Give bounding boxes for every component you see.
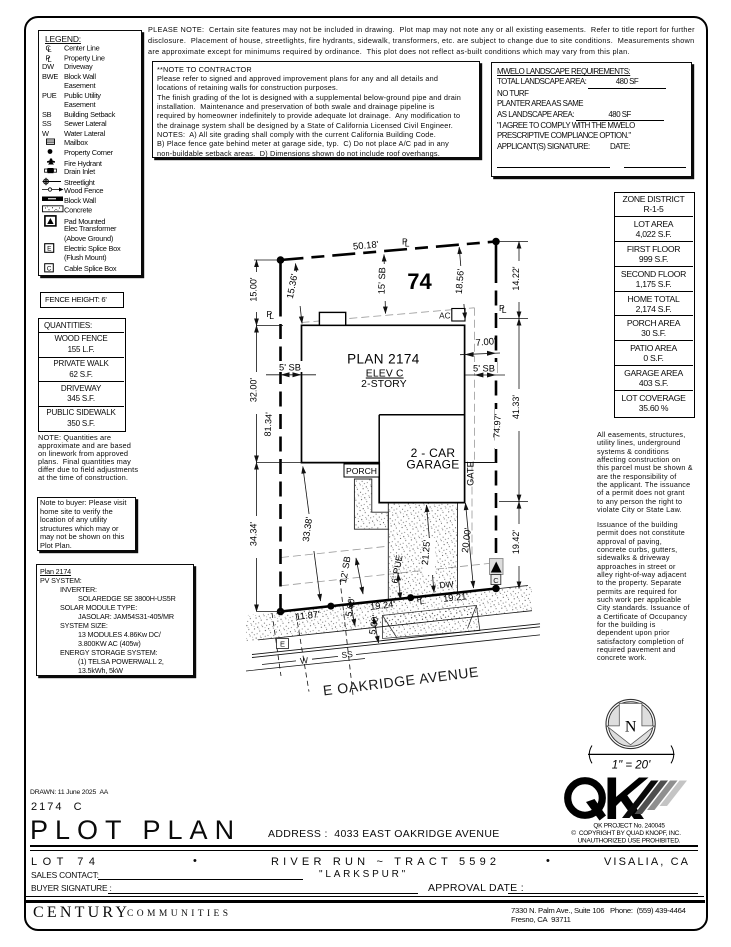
- svg-text:PLAN 2174: PLAN 2174: [347, 352, 420, 367]
- svg-text:E: E: [280, 640, 285, 649]
- svg-text:AC: AC: [439, 312, 450, 321]
- svg-text:PORCH: PORCH: [346, 466, 377, 476]
- svg-text:C: C: [493, 576, 499, 585]
- svg-text:81.34': 81.34': [263, 412, 274, 437]
- svg-text:19.42': 19.42': [511, 530, 521, 555]
- svg-text:L: L: [269, 311, 274, 321]
- svg-text:74.97': 74.97': [492, 413, 503, 438]
- svg-text:SS: SS: [341, 649, 354, 660]
- svg-text:32.00': 32.00': [249, 378, 259, 403]
- svg-text:41.33': 41.33': [511, 395, 521, 420]
- svg-text:L: L: [502, 305, 507, 315]
- svg-text:L: L: [405, 239, 410, 249]
- svg-text:74: 74: [407, 269, 432, 294]
- svg-text:12' SB: 12' SB: [338, 556, 353, 584]
- svg-text:14.22': 14.22': [511, 266, 521, 291]
- svg-text:2-STORY: 2-STORY: [361, 379, 407, 390]
- svg-text:7.00': 7.00': [475, 336, 496, 349]
- svg-text:DW: DW: [439, 579, 454, 590]
- svg-text:15.00': 15.00': [249, 277, 259, 302]
- svg-text:50.18': 50.18': [353, 239, 380, 252]
- svg-text:5.00': 5.00': [367, 614, 380, 636]
- svg-text:5' SB: 5' SB: [473, 364, 495, 374]
- svg-text:UNAUTHORIZED USE PROHIBITED.: UNAUTHORIZED USE PROHIBITED.: [578, 838, 681, 845]
- svg-text:GATE: GATE: [466, 461, 476, 486]
- svg-text:QK PROJECT No. 240045: QK PROJECT No. 240045: [593, 823, 665, 830]
- svg-text:34.34': 34.34': [249, 522, 259, 547]
- svg-text:15' SB: 15' SB: [376, 267, 387, 294]
- svg-text:N: N: [625, 719, 637, 736]
- svg-text:20.00': 20.00': [460, 527, 473, 553]
- svg-text:5' SB: 5' SB: [279, 363, 301, 373]
- svg-text:© COPYRIGHT BY QUAD KNOPF, IN: © COPYRIGHT BY QUAD KNOPF, INC.: [571, 829, 681, 837]
- svg-text:E OAKRIDGE AVENUE: E OAKRIDGE AVENUE: [322, 664, 480, 699]
- svg-text:GARAGE: GARAGE: [406, 458, 459, 472]
